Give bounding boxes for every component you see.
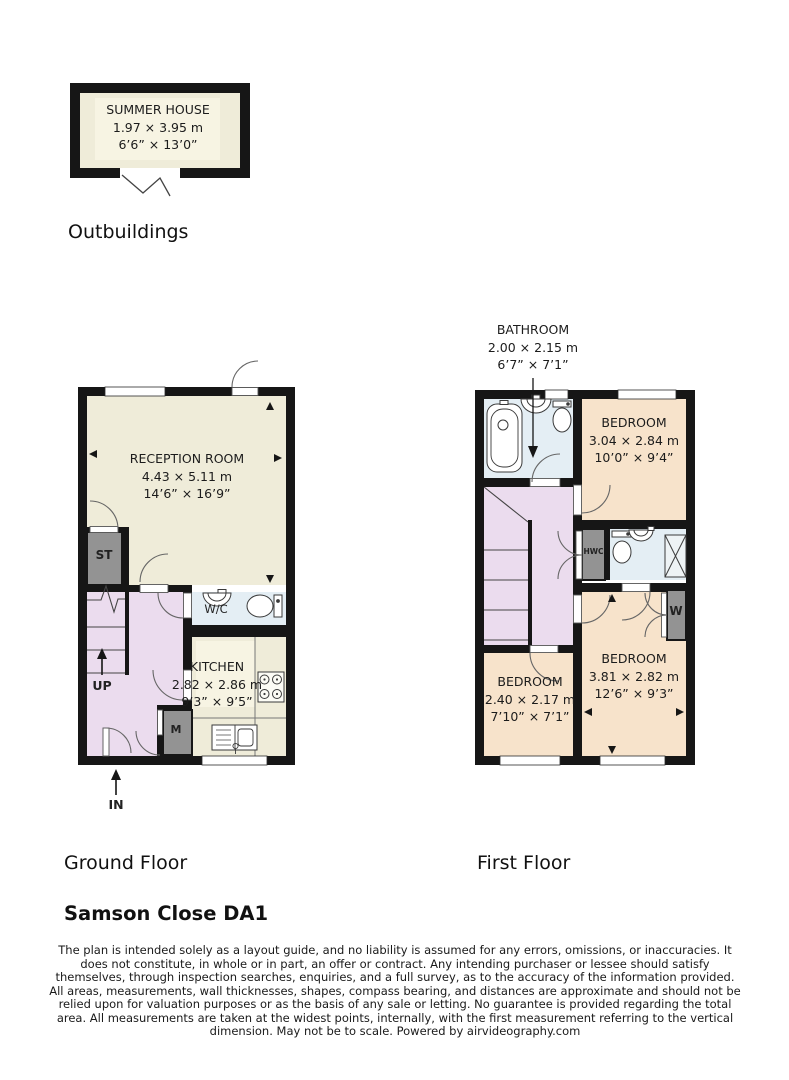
ground-floor-section-label: Ground Floor (64, 852, 187, 874)
storage-door-leaf (90, 527, 118, 533)
bedroom-left-label: BEDROOM 2.40 × 2.17 m 7’10” × 7’1” (450, 673, 610, 726)
summer-house-label: SUMMER HOUSE 1.97 × 3.95 m 6’6” × 13’0” (78, 101, 238, 154)
room-dims-metric: 1.97 × 3.95 m (78, 119, 238, 137)
room-name: BEDROOM (450, 673, 610, 691)
window (500, 756, 560, 765)
room-name: RECEPTION ROOM (107, 450, 267, 468)
ground-floor-plan (70, 350, 305, 815)
room-dims-metric: 2.82 × 2.86 m (137, 676, 297, 694)
window (105, 387, 165, 396)
room-dims-metric: 2.00 × 2.15 m (453, 339, 613, 357)
room-name: BEDROOM (554, 414, 714, 432)
room-name: BATHROOM (453, 321, 613, 339)
room-name: KITCHEN (137, 658, 297, 676)
room-name: BEDROOM (554, 650, 714, 668)
first-floor-section-label: First Floor (477, 852, 570, 874)
bathroom-label: BATHROOM 2.00 × 2.15 m 6’7” × 7’1” (453, 321, 613, 374)
window (202, 756, 267, 765)
entrance-door-leaf (103, 728, 109, 756)
back-door-leaf (232, 388, 258, 396)
room-dims-metric: 4.43 × 5.11 m (107, 468, 267, 486)
window (600, 756, 665, 765)
property-address: Samson Close DA1 (64, 902, 268, 925)
reception-room-label: RECEPTION ROOM 4.43 × 5.11 m 14’6” × 16’… (107, 450, 267, 503)
room-name: SUMMER HOUSE (78, 101, 238, 119)
wardrobe-label: W (664, 604, 688, 618)
bathtub-icon (487, 404, 522, 472)
window (618, 390, 676, 399)
room-dims-imperial: 6’7” × 7’1” (453, 356, 613, 374)
room-dims-imperial: 14’6” × 16’9” (107, 485, 267, 503)
hwc-door-leaf (576, 555, 582, 579)
summer-house-door-opening (120, 168, 180, 196)
outbuildings-section-label: Outbuildings (68, 221, 188, 243)
toilet-icon (613, 541, 631, 563)
disclaimer-text: The plan is intended solely as a layout … (49, 944, 741, 1039)
room-dims-imperial: 7’10” × 7’1” (450, 708, 610, 726)
bath-tap-icon (500, 401, 508, 405)
room-dims-imperial: 9’3” × 9’5” (137, 693, 297, 711)
bedroom-top-label: BEDROOM 3.04 × 2.84 m 10’0” × 9’4” (554, 414, 714, 467)
wc-label: W/C (186, 602, 246, 616)
room-dims-metric: 2.40 × 2.17 m (450, 691, 610, 709)
storage-label: ST (84, 548, 124, 562)
up-label: UP (82, 678, 122, 693)
floorplan-page: SUMMER HOUSE 1.97 × 3.95 m 6’6” × 13’0” … (0, 0, 789, 1080)
bedroom-right-door-leaf (574, 595, 582, 623)
reception-door-leaf (140, 585, 168, 593)
room-dims-imperial: 10’0” × 9’4” (554, 449, 714, 467)
room-dims-imperial: 6’6” × 13’0” (78, 136, 238, 154)
bedroom-top-door-leaf (574, 485, 582, 515)
bathroom-door-leaf (530, 479, 560, 487)
entrance-in-arrow-icon (111, 769, 121, 795)
window (545, 390, 568, 399)
kitchen-label: KITCHEN 2.82 × 2.86 m 9’3” × 9’5” (137, 658, 297, 711)
meter-label: M (162, 723, 190, 736)
tap-icon (648, 527, 654, 531)
kitchen-sink-icon (212, 725, 257, 754)
hwc-label: HWC (578, 547, 609, 556)
ensuite-door-leaf (622, 584, 650, 592)
room-dims-metric: 3.04 × 2.84 m (554, 432, 714, 450)
toilet-icon (247, 595, 273, 617)
tap-icon (218, 590, 226, 594)
wardrobe-door-leaf (662, 615, 667, 637)
open-door-zigzag-icon (122, 175, 170, 196)
toilet-cistern-icon (274, 595, 282, 617)
in-label: IN (96, 797, 136, 812)
